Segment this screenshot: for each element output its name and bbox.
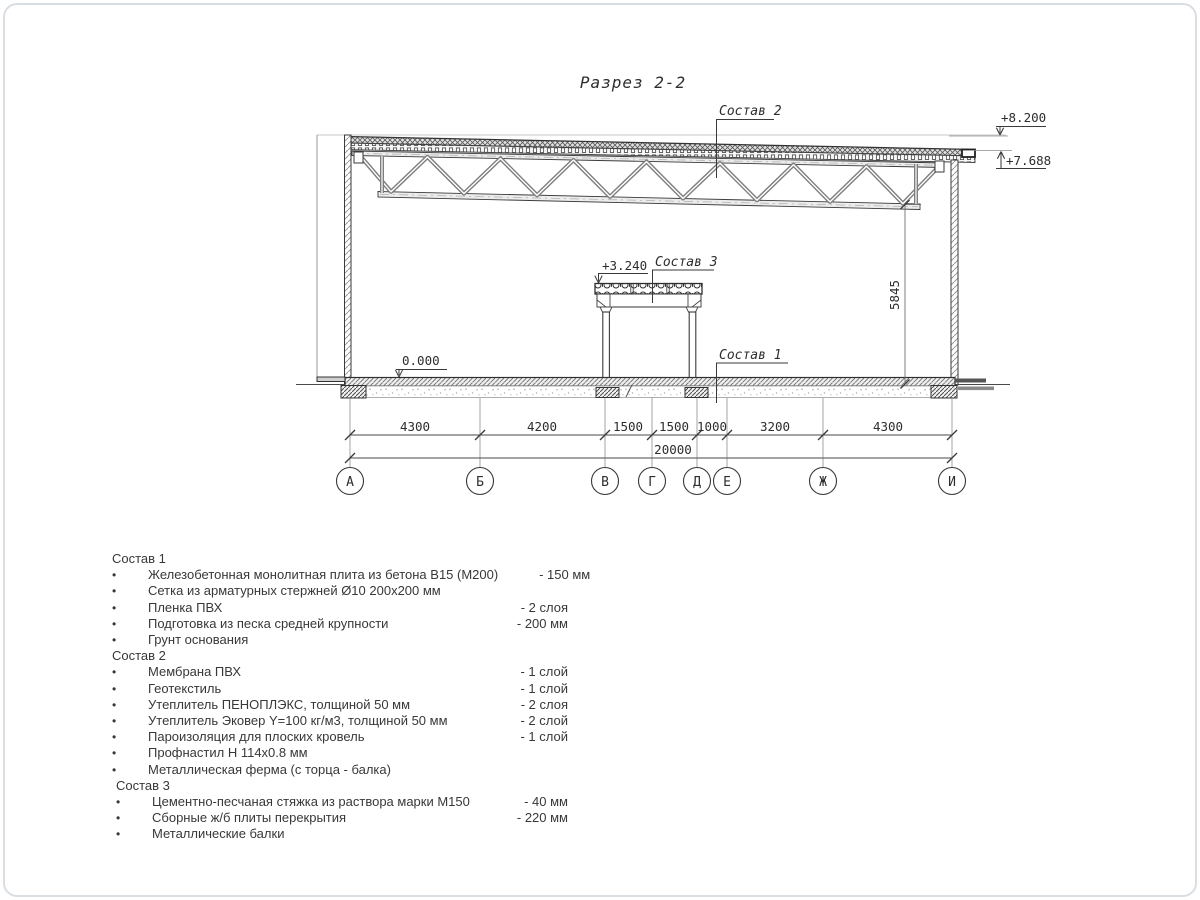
- legend-section-title: Состав 2: [112, 648, 568, 664]
- bullet-icon: •: [112, 616, 148, 632]
- bullet-icon: •: [112, 826, 152, 842]
- bullet-icon: •: [112, 762, 148, 778]
- bullet-icon: •: [112, 697, 148, 713]
- axis-label: А: [346, 475, 354, 490]
- legend-item: • Профнастил Н 114x0.8 мм: [112, 745, 568, 761]
- legend-item-text: Железобетонная монолитная плита из бетон…: [148, 567, 498, 583]
- legend-item-value: - 200 мм: [476, 616, 568, 632]
- drawing-title: Разрез 2-2: [580, 73, 686, 92]
- dimension-value: 4200: [527, 419, 557, 434]
- legend-item-text: Пленка ПВХ: [148, 600, 476, 616]
- axis-bubbles: А Б В Г Д Е Ж И: [337, 468, 966, 495]
- legend-item-text: Пароизоляция для плоских кровель: [148, 729, 476, 745]
- dimension-total-value: 20000: [654, 442, 692, 457]
- mezzanine-beam: [597, 294, 701, 307]
- legend-item: • Металлические балки: [112, 826, 568, 842]
- legend-item-value: - 2 слоя: [476, 697, 568, 713]
- axis-label: И: [948, 475, 956, 490]
- legend-item-text: Сетка из арматурных стержней Ø10 200x200…: [148, 583, 476, 599]
- axis-label: Б: [476, 475, 484, 490]
- walls: [345, 135, 959, 385]
- legend-item: • Утеплитель ПЕНОПЛЭКС, толщиной 50 мм -…: [112, 697, 568, 713]
- floor-slab: [296, 377, 1010, 398]
- axis-label: Ж: [819, 475, 827, 490]
- bullet-icon: •: [112, 729, 148, 745]
- elevation-mark-roof-top: +8.200: [949, 110, 1046, 136]
- legend-item-value: - 220 мм: [476, 810, 568, 826]
- legend-item: • Пленка ПВХ - 2 слоя: [112, 600, 568, 616]
- foundation-pad: [596, 388, 619, 398]
- legend-item-value: - 1 слой: [476, 681, 568, 697]
- legend-item-text: Геотекстиль: [148, 681, 476, 697]
- bullet-icon: •: [112, 567, 148, 583]
- legend-item-text: Сборные ж/б плиты перекрытия: [152, 810, 476, 826]
- right-apron-upper: [955, 379, 986, 383]
- legend-item-text: Металлические балки: [152, 826, 476, 842]
- bullet-icon: •: [112, 664, 148, 680]
- legend-item: • Мембрана ПВХ - 1 слой: [112, 664, 568, 680]
- mezzanine-column-right: [689, 312, 696, 378]
- bullet-icon: •: [112, 632, 148, 648]
- legend-item: • Пароизоляция для плоских кровель - 1 с…: [112, 729, 568, 745]
- legend-item-value: - 2 слоя: [476, 600, 568, 616]
- drawing-sheet: Разрез 2-2: [0, 0, 1200, 900]
- legend-item: • Металлическая ферма (с торца - балка): [112, 762, 568, 778]
- dimension-chain: 4300 4200 1500 1500 1000 3200 4300 20000: [345, 398, 957, 467]
- bullet-icon: •: [112, 681, 148, 697]
- vertical-dimension: 5845: [887, 200, 921, 389]
- bullet-icon: •: [112, 713, 148, 729]
- dimension-value: 1000: [697, 419, 727, 434]
- left-apron: [317, 377, 345, 382]
- axis-label: В: [601, 475, 609, 490]
- legend-item-text: Цементно-песчаная стяжка из раствора мар…: [152, 794, 476, 810]
- legend-item: • Сетка из арматурных стержней Ø10 200x2…: [112, 583, 568, 599]
- legend-item-text: Подготовка из песка средней крупности: [148, 616, 476, 632]
- legend-item: • Железобетонная монолитная плита из бет…: [112, 567, 568, 583]
- right-apron-lower: [958, 387, 994, 391]
- right-wall: [951, 160, 958, 385]
- foundation-pad: [685, 388, 708, 398]
- legend-item-value: - 1 слой: [476, 664, 568, 680]
- materials-legend: Состав 1 • Железобетонная монолитная пли…: [112, 551, 568, 843]
- bullet-icon: •: [112, 600, 148, 616]
- axis-label: Е: [723, 475, 731, 490]
- legend-item-value: - 1 слой: [476, 729, 568, 745]
- bullet-icon: •: [112, 583, 148, 599]
- dimension-value: 4300: [873, 419, 903, 434]
- callout-label: Состав 2: [719, 104, 782, 119]
- dimension-value: 1500: [613, 419, 643, 434]
- legend-item: • Цементно-песчаная стяжка из раствора м…: [112, 794, 568, 810]
- mezzanine-column-left: [603, 312, 610, 378]
- roof-edge-plate: [962, 150, 975, 158]
- dimension-value: 1500: [659, 419, 689, 434]
- axis-label: Д: [693, 475, 701, 490]
- legend-item-text: Металлическая ферма (с торца - балка): [148, 762, 476, 778]
- elevation-value: +7.688: [1006, 153, 1051, 168]
- legend-item-text: Утеплитель ПЕНОПЛЭКС, толщиной 50 мм: [148, 697, 476, 713]
- bullet-icon: •: [112, 810, 152, 826]
- legend-item: • Грунт основания: [112, 632, 568, 648]
- dimension-value: 3200: [760, 419, 790, 434]
- legend-item-text: Мембрана ПВХ: [148, 664, 476, 680]
- elevation-value: +8.200: [1001, 110, 1046, 125]
- legend-item-value: - 150 мм: [498, 567, 590, 583]
- legend-section-title: Состав 3: [112, 778, 568, 794]
- legend-item: • Геотекстиль - 1 слой: [112, 681, 568, 697]
- legend-item: • Утеплитель Эковер Y=100 кг/м3, толщино…: [112, 713, 568, 729]
- bullet-icon: •: [112, 794, 152, 810]
- section-drawing: Разрез 2-2: [0, 0, 1200, 545]
- legend-section-title: Состав 1: [112, 551, 568, 567]
- legend-item: • Сборные ж/б плиты перекрытия - 220 мм: [112, 810, 568, 826]
- truss-right-gusset: [935, 161, 944, 172]
- dimension-value: 5845: [887, 280, 902, 310]
- legend-item: • Подготовка из песка средней крупности …: [112, 616, 568, 632]
- callout-label: Состав 1: [719, 348, 782, 363]
- axis-label: Г: [648, 475, 656, 490]
- legend-item-text: Грунт основания: [148, 632, 476, 648]
- foundation-pad: [931, 386, 957, 399]
- legend-item-value: - 2 слой: [476, 713, 568, 729]
- elevation-value: 0.000: [402, 353, 440, 368]
- dimension-value: 4300: [400, 419, 430, 434]
- mezzanine-slab: [595, 284, 702, 295]
- elevation-value: +3.240: [602, 258, 647, 273]
- elevation-mark-roof-edge: +7.688: [974, 151, 1051, 169]
- callout-label: Состав 3: [655, 255, 718, 270]
- legend-item-text: Профнастил Н 114x0.8 мм: [148, 745, 476, 761]
- truss-left-gusset: [354, 152, 363, 163]
- left-wall: [345, 135, 352, 385]
- foundation-pad: [341, 386, 366, 399]
- legend-item-text: Утеплитель Эковер Y=100 кг/м3, толщиной …: [148, 713, 476, 729]
- mezzanine-platform: [595, 284, 702, 379]
- elevation-mark-mezzanine: +3.240: [595, 258, 648, 283]
- bullet-icon: •: [112, 745, 148, 761]
- legend-item-value: - 40 мм: [476, 794, 568, 810]
- elevation-mark-floor: 0.000: [395, 353, 447, 377]
